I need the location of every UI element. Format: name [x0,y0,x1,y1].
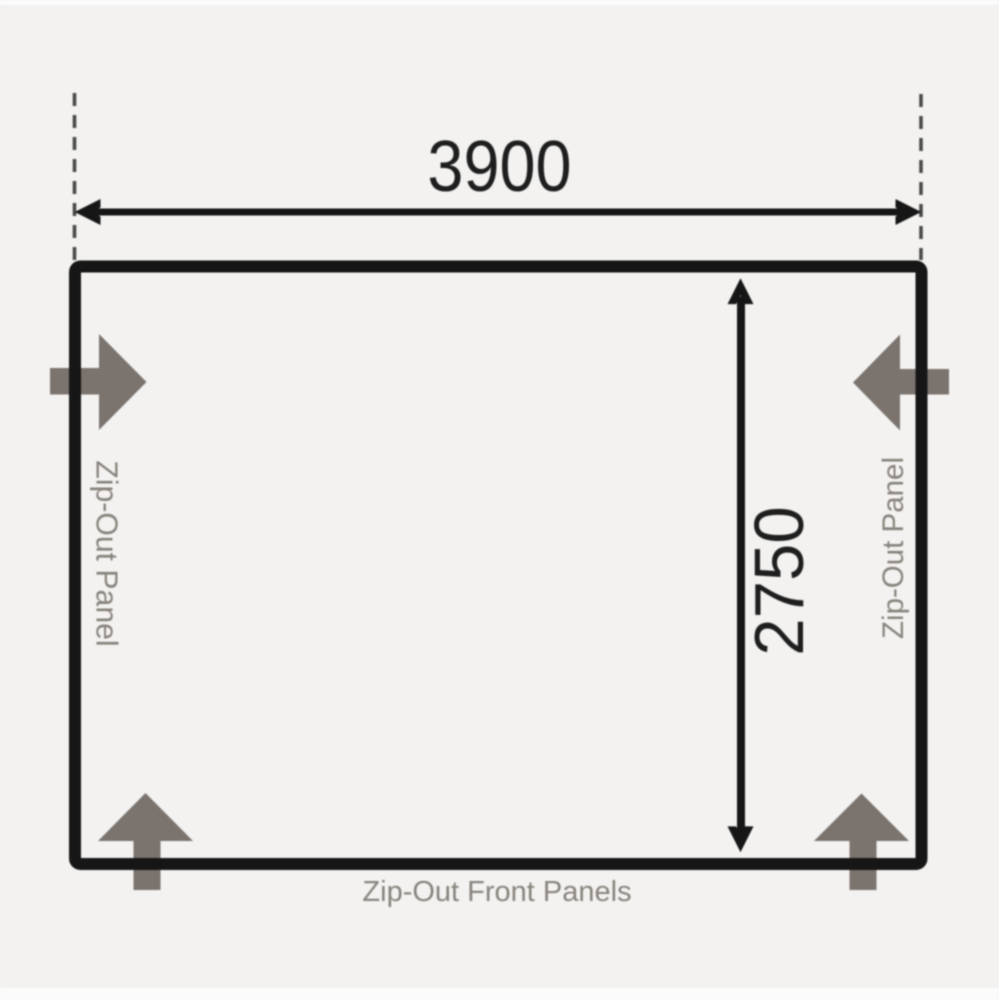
svg-text:Zip-Out Panel: Zip-Out Panel [877,457,910,639]
svg-text:2750: 2750 [740,506,819,655]
svg-text:Zip-Out Front Panels: Zip-Out Front Panels [362,876,631,908]
svg-text:3900: 3900 [427,126,571,207]
svg-text:Zip-Out Panel: Zip-Out Panel [90,460,123,646]
